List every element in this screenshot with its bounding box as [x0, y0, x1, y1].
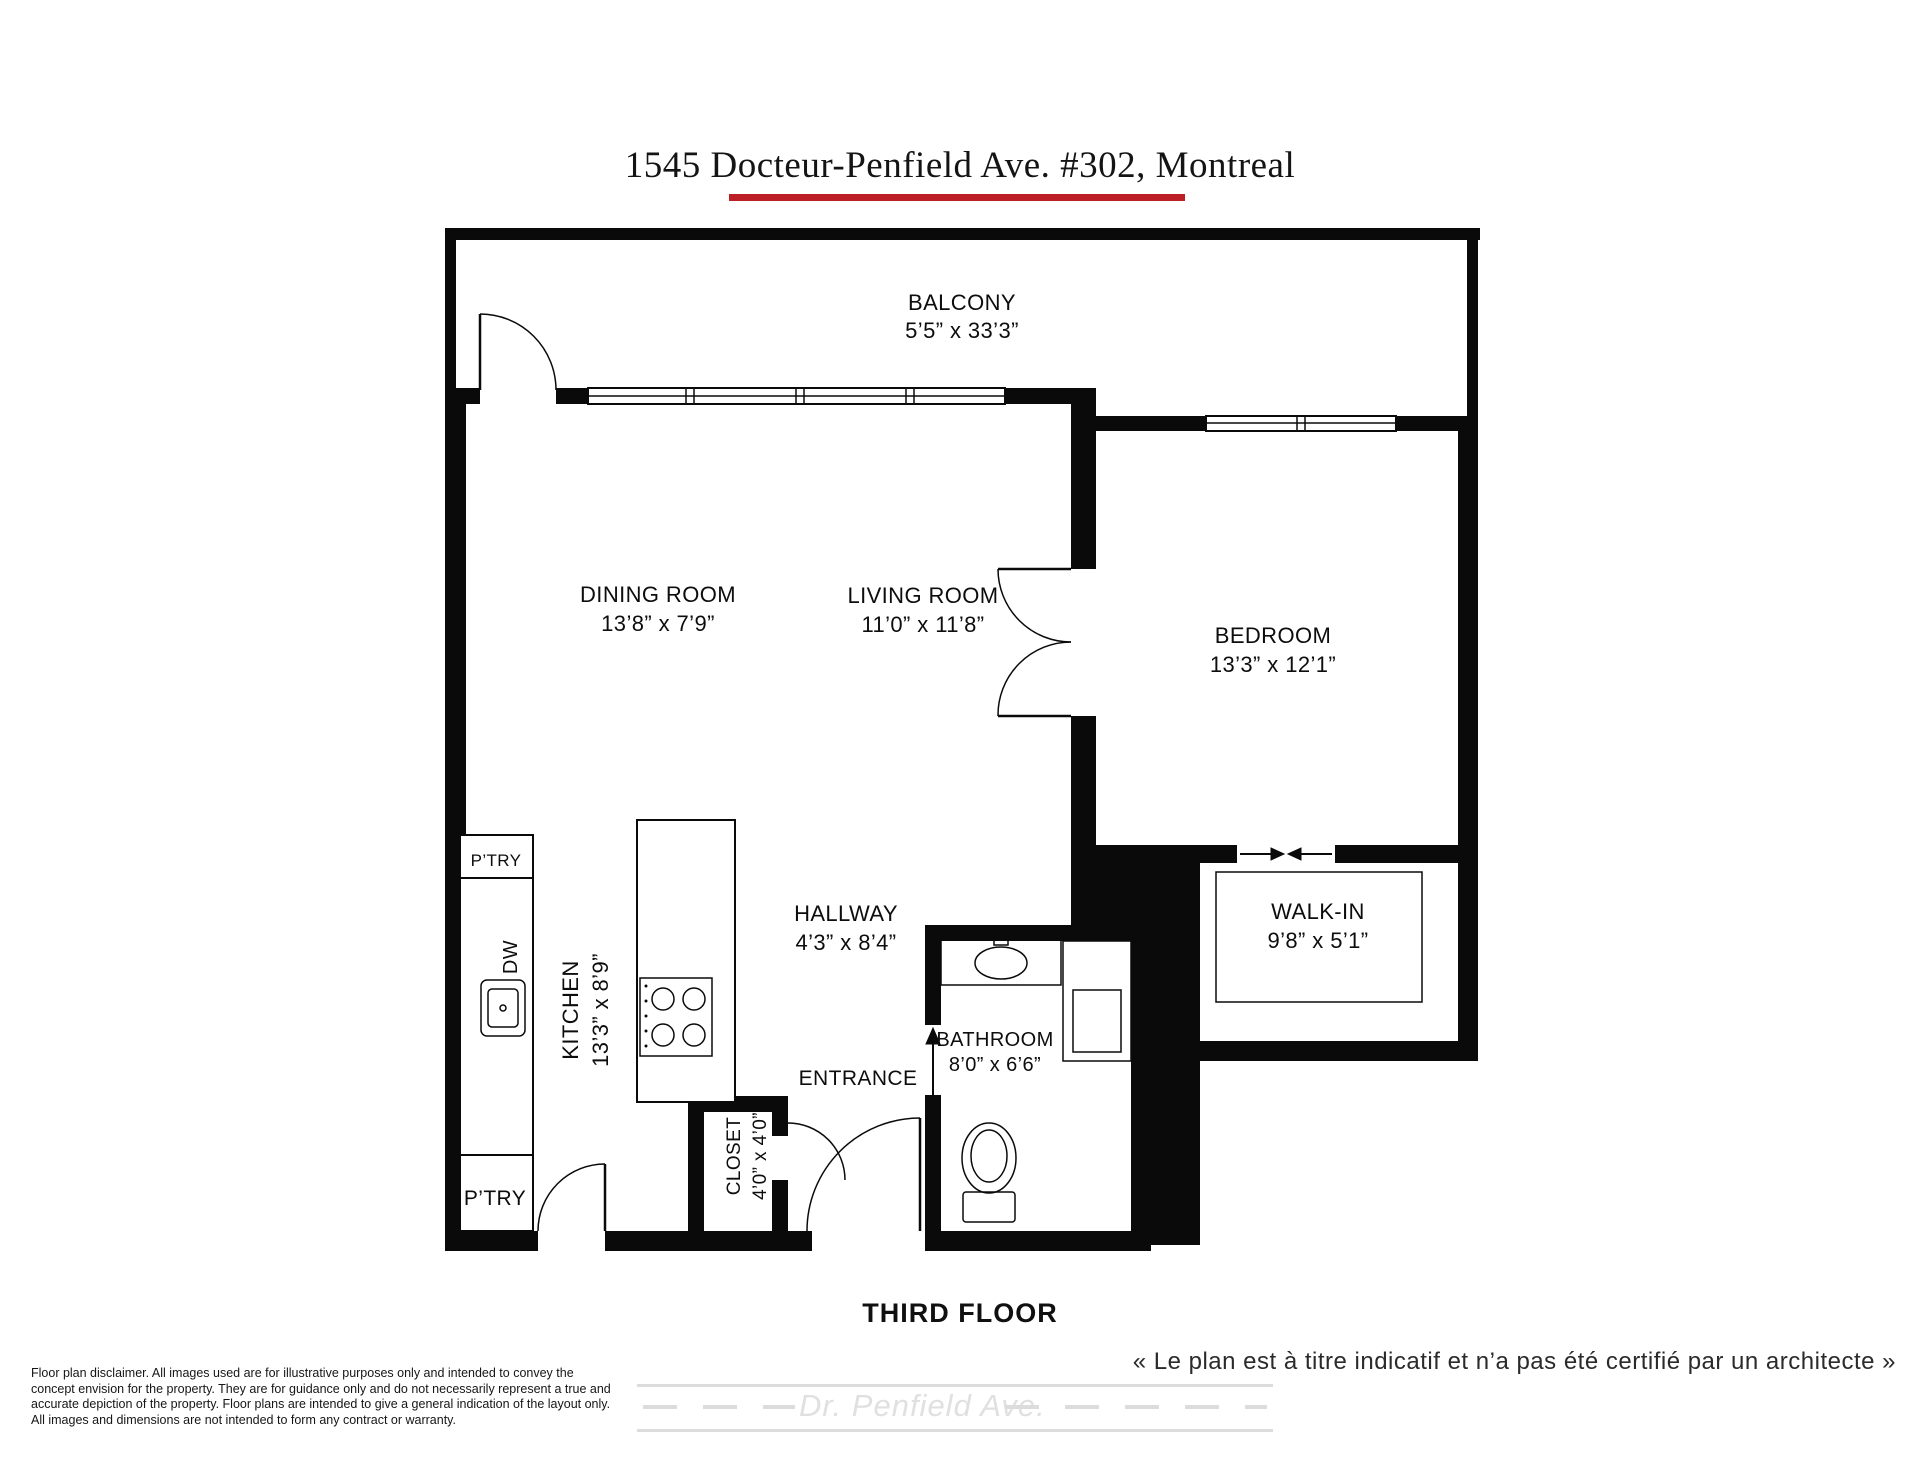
toilet	[962, 1123, 1016, 1222]
walkin-label: WALK-IN	[1271, 899, 1365, 924]
closet-door	[788, 1123, 845, 1180]
bedroom-window	[1206, 416, 1396, 431]
pantry-top-label: P’TRY	[471, 851, 522, 870]
kitchen-island-counter	[637, 820, 735, 1102]
kitchen-left-counter	[460, 835, 533, 1231]
walkin-dims: 9’8” x 5’1”	[1268, 928, 1369, 953]
bathroom-vanity-sink	[941, 937, 1061, 985]
balcony-label: BALCONY	[908, 290, 1016, 315]
bedroom-dims: 13’3” x 12’1”	[1210, 652, 1336, 677]
bedroom-label: BEDROOM	[1215, 623, 1331, 648]
living-room-label: LIVING ROOM	[847, 583, 998, 608]
walkin-sliding-door-arrows	[1240, 848, 1332, 860]
floor-plan-page: 1545 Docteur-Penfield Ave. #302, Montrea…	[0, 0, 1920, 1483]
living-room-window	[588, 388, 1005, 404]
floor-plan-drawing: BALCONY 5’5” x 33’3” DINING ROOM 13’8” x…	[0, 0, 1920, 1483]
road-edge-line	[637, 1429, 1273, 1432]
bathroom-dims: 8’0” x 6’6”	[949, 1054, 1041, 1076]
road-center-dashes	[643, 1405, 795, 1409]
road-center-dashes	[1005, 1405, 1267, 1409]
dining-room-dims: 13’8” x 7’9”	[601, 611, 715, 636]
walls	[445, 228, 1480, 1251]
french-disclaimer-note: « Le plan est à titre indicatif et n’a p…	[1133, 1348, 1896, 1376]
dining-room-label: DINING ROOM	[580, 582, 736, 607]
disclaimer-line: accurate depiction of the property. Floo…	[31, 1397, 631, 1413]
closet-dims: 4’0” x 4’0”	[750, 1112, 771, 1200]
disclaimer-line: Floor plan disclaimer. All images used a…	[31, 1366, 631, 1382]
closet-label: CLOSET	[724, 1117, 745, 1195]
entrance-label: ENTRANCE	[799, 1067, 918, 1090]
pantry-bottom-label: P’TRY	[464, 1187, 526, 1210]
bathroom-label: BATHROOM	[936, 1029, 1053, 1051]
floor-level-label: THIRD FLOOR	[0, 1298, 1920, 1329]
hallway-dims: 4’3” x 8’4”	[796, 930, 897, 955]
disclaimer-line: concept envision for the property. They …	[31, 1382, 631, 1398]
hallway-label: HALLWAY	[794, 901, 898, 926]
dishwasher-label: DW	[500, 940, 522, 974]
bedroom-french-doors	[998, 569, 1071, 716]
kitchen-label: KITCHEN	[558, 960, 583, 1059]
balcony-door	[480, 314, 556, 390]
kitchen-dims: 13’3” x 8’9”	[588, 953, 613, 1067]
street-graphic: Dr. Penfield Ave.	[637, 1384, 1273, 1432]
road-edge-line	[637, 1384, 1273, 1387]
living-room-dims: 11’0” x 11’8”	[862, 612, 985, 637]
disclaimer-line: All images and dimensions are not intend…	[31, 1413, 631, 1429]
shower	[1063, 941, 1131, 1061]
balcony-dims: 5’5” x 33’3”	[905, 318, 1019, 343]
kitchen-door	[538, 1164, 605, 1231]
disclaimer-text: Floor plan disclaimer. All images used a…	[31, 1366, 631, 1428]
